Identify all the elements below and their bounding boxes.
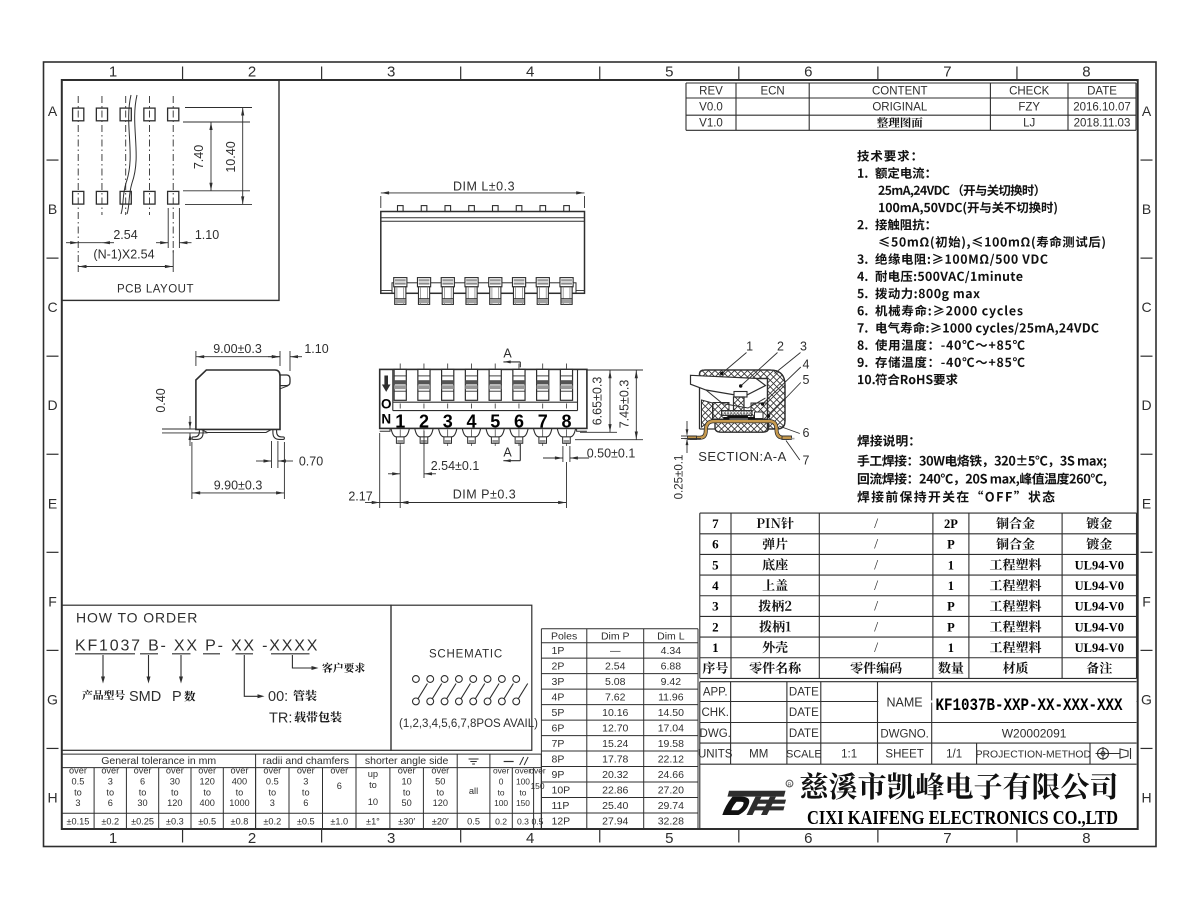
svg-text:CONTENT: CONTENT (872, 86, 928, 98)
svg-text:to: to (302, 787, 310, 797)
svg-text:3: 3 (303, 776, 308, 786)
svg-text:10: 10 (402, 776, 412, 786)
svg-text:±0.25: ±0.25 (131, 817, 154, 827)
svg-text:14.50: 14.50 (658, 707, 684, 719)
svg-text:to: to (519, 787, 526, 797)
svg-text:19.58: 19.58 (658, 738, 684, 750)
svg-text:7.62: 7.62 (605, 691, 626, 703)
svg-text:30: 30 (137, 798, 147, 808)
svg-text:5.08: 5.08 (605, 676, 626, 688)
svg-text:UL94-V0: UL94-V0 (1075, 579, 1124, 593)
svg-text:UL94-V0: UL94-V0 (1075, 620, 1124, 634)
svg-text:UL94-V0: UL94-V0 (1075, 641, 1124, 655)
svg-text:6: 6 (337, 781, 342, 791)
svg-text:over: over (297, 766, 315, 776)
svg-text:to: to (369, 780, 377, 790)
svg-text:17.04: 17.04 (658, 722, 684, 734)
svg-text:4.34: 4.34 (661, 645, 682, 657)
svg-text:DWGNO.: DWGNO. (880, 728, 929, 740)
svg-text:400: 400 (199, 798, 214, 808)
svg-text:100: 100 (494, 798, 508, 808)
svg-text:8P: 8P (552, 753, 565, 765)
svg-text:V0.0: V0.0 (699, 102, 723, 114)
svg-text:±1.0: ±1.0 (330, 817, 348, 827)
svg-text:KF1037 B- XX P- XX -XXXX: KF1037 B- XX P- XX -XXXX (75, 638, 319, 655)
svg-text:DATE: DATE (789, 687, 819, 699)
svg-text:/: / (874, 537, 879, 553)
svg-text:2018.11.03: 2018.11.03 (1074, 118, 1131, 130)
svg-text:11P: 11P (552, 800, 570, 812)
svg-text:FZY: FZY (1018, 102, 1040, 114)
svg-text:W20002091: W20002091 (1002, 726, 1067, 740)
svg-text:±0.5: ±0.5 (198, 817, 216, 827)
svg-text:6: 6 (140, 776, 145, 786)
svg-text:2: 2 (712, 619, 719, 634)
svg-text:to: to (106, 787, 114, 797)
svg-text:00:: 00: (268, 689, 288, 705)
svg-text:2P: 2P (944, 517, 958, 531)
svg-text:±0.5: ±0.5 (297, 817, 315, 827)
svg-text:±0.2: ±0.2 (263, 817, 281, 827)
svg-text:to: to (268, 787, 276, 797)
svg-text:over: over (166, 766, 184, 776)
svg-text:22.86: 22.86 (602, 784, 628, 796)
svg-text:30: 30 (170, 776, 180, 786)
svg-text:12P: 12P (552, 815, 571, 827)
svg-text:P: P (947, 600, 955, 614)
svg-text:CIXI KAIFENG ELECTRONICS CO.,L: CIXI KAIFENG ELECTRONICS CO.,LTD (807, 807, 1118, 829)
svg-text:100: 100 (516, 776, 530, 786)
svg-text:1: 1 (948, 558, 954, 572)
svg-text:SECTION:A-A: SECTION:A-A (698, 449, 787, 464)
svg-text:0.5: 0.5 (266, 776, 279, 786)
svg-text:1: 1 (948, 641, 954, 655)
svg-text:7: 7 (803, 453, 810, 467)
svg-text:2P: 2P (552, 661, 565, 673)
svg-text:to: to (171, 787, 179, 797)
svg-text:10.16: 10.16 (602, 707, 628, 719)
svg-text:SHEET: SHEET (885, 749, 923, 761)
svg-text:±30′: ±30′ (398, 817, 415, 827)
svg-text:0: 0 (499, 776, 504, 786)
svg-text:over: over (101, 766, 119, 776)
svg-text:6: 6 (712, 537, 719, 552)
svg-text:over: over (330, 766, 348, 776)
svg-text:over: over (69, 766, 87, 776)
svg-text:to: to (203, 787, 211, 797)
svg-text:over: over (493, 766, 510, 776)
svg-text:120: 120 (199, 776, 214, 786)
svg-text:to: to (436, 787, 444, 797)
svg-text:11.96: 11.96 (658, 691, 684, 703)
svg-text:HOW TO ORDER: HOW TO ORDER (76, 610, 198, 626)
svg-text:6: 6 (108, 798, 113, 808)
svg-text:3P: 3P (552, 676, 565, 688)
svg-text:6: 6 (803, 426, 810, 440)
svg-text:Dim P: Dim P (601, 631, 630, 643)
svg-text:APP.: APP. (703, 687, 728, 699)
svg-text:4: 4 (712, 578, 719, 593)
svg-text:0.3: 0.3 (517, 817, 529, 827)
svg-text:SMD: SMD (129, 689, 161, 705)
svg-text:4: 4 (803, 357, 810, 371)
svg-text:27.94: 27.94 (602, 815, 628, 827)
svg-text:UL94-V0: UL94-V0 (1075, 558, 1124, 572)
svg-text:0.5: 0.5 (72, 776, 85, 786)
svg-text:DATE: DATE (789, 707, 819, 719)
svg-text:3: 3 (270, 798, 275, 808)
svg-text:CHECK: CHECK (1009, 86, 1050, 98)
svg-text:±1°: ±1° (366, 817, 380, 827)
svg-text:5: 5 (803, 373, 810, 387)
svg-text:SCHEMATIC: SCHEMATIC (429, 649, 503, 661)
svg-text:R: R (788, 782, 792, 788)
svg-text:3: 3 (800, 340, 807, 354)
svg-text:1:1: 1:1 (841, 749, 857, 761)
svg-text:2: 2 (777, 340, 784, 354)
svg-text:3: 3 (108, 776, 113, 786)
svg-text:—: — (610, 645, 621, 657)
svg-text:50: 50 (435, 776, 445, 786)
svg-text:0.2: 0.2 (495, 817, 507, 827)
svg-text:1: 1 (948, 579, 954, 593)
svg-text:up: up (368, 769, 378, 779)
svg-text:(1,2,3,4,5,6,7,8POS AVAIL): (1,2,3,4,5,6,7,8POS AVAIL) (399, 718, 538, 730)
svg-text:to: to (403, 787, 411, 797)
svg-text:to: to (236, 787, 244, 797)
svg-text:to: to (74, 787, 82, 797)
svg-text:ORIGINAL: ORIGINAL (872, 102, 928, 114)
svg-text:P: P (947, 620, 955, 634)
svg-text:3: 3 (75, 798, 80, 808)
svg-text:/: / (874, 619, 879, 635)
svg-text:1: 1 (712, 640, 719, 655)
svg-text:REV: REV (699, 86, 723, 98)
svg-text:±0.15: ±0.15 (66, 817, 89, 827)
svg-text:over: over (398, 766, 416, 776)
svg-text:over: over (431, 766, 449, 776)
svg-text:P: P (947, 538, 955, 552)
svg-text:all: all (469, 786, 478, 796)
svg-text:V1.0: V1.0 (699, 118, 723, 130)
svg-text:Dim L: Dim L (657, 631, 685, 643)
svg-text:P: P (172, 689, 182, 705)
svg-text:50: 50 (402, 798, 412, 808)
svg-text:/: / (874, 578, 879, 594)
svg-text:12.70: 12.70 (602, 722, 628, 734)
svg-text:TR:: TR: (269, 711, 292, 727)
svg-text:NAME: NAME (887, 696, 923, 710)
svg-text:±20′: ±20′ (432, 817, 449, 827)
svg-text:±0.3: ±0.3 (166, 817, 184, 827)
svg-text:25.40: 25.40 (602, 800, 628, 812)
svg-text:1000: 1000 (229, 798, 249, 808)
svg-text:2016.10.07: 2016.10.07 (1073, 102, 1131, 114)
svg-text:15.24: 15.24 (602, 738, 628, 750)
svg-text:UL94-V0: UL94-V0 (1075, 600, 1124, 614)
svg-text:22.12: 22.12 (658, 753, 684, 765)
svg-text:/: / (874, 557, 879, 573)
svg-text:1/1: 1/1 (946, 749, 962, 761)
svg-text:ECN: ECN (760, 86, 784, 98)
svg-text:17.78: 17.78 (602, 753, 628, 765)
svg-text:9.42: 9.42 (661, 676, 682, 688)
svg-text:1: 1 (746, 340, 753, 354)
svg-text:DATE: DATE (1087, 86, 1117, 98)
svg-text:DWG.: DWG. (700, 728, 731, 740)
svg-text:29.74: 29.74 (658, 800, 684, 812)
svg-text:20.32: 20.32 (602, 769, 628, 781)
svg-text:24.66: 24.66 (658, 769, 684, 781)
svg-text:5P: 5P (552, 707, 565, 719)
svg-text:120: 120 (167, 798, 182, 808)
svg-text:1P: 1P (552, 645, 565, 657)
svg-text:150: 150 (516, 798, 530, 808)
svg-text:120: 120 (433, 798, 448, 808)
svg-text:DATE: DATE (789, 728, 819, 740)
svg-text:Poles: Poles (551, 631, 577, 643)
svg-text:LJ: LJ (1023, 118, 1035, 130)
svg-text:over: over (198, 766, 216, 776)
svg-text:7: 7 (712, 516, 719, 531)
svg-text:to: to (498, 787, 505, 797)
svg-text:±0.2: ±0.2 (101, 817, 119, 827)
svg-text:SCALE: SCALE (786, 749, 821, 761)
svg-text:2.54: 2.54 (605, 661, 626, 673)
svg-text:6.88: 6.88 (661, 661, 682, 673)
svg-text:400: 400 (232, 776, 247, 786)
svg-text:6P: 6P (552, 722, 565, 734)
svg-text:0.5: 0.5 (467, 817, 480, 827)
svg-text:to: to (139, 787, 147, 797)
svg-text:9P: 9P (552, 769, 565, 781)
svg-text:over: over (263, 766, 281, 776)
svg-text:PROJECTION-METHOD: PROJECTION-METHOD (976, 750, 1091, 761)
svg-text:4P: 4P (552, 691, 565, 703)
svg-text:CHK.: CHK. (701, 707, 728, 719)
svg-text:10: 10 (368, 797, 378, 807)
svg-text:5: 5 (712, 557, 719, 572)
svg-text:UNITS: UNITS (698, 749, 733, 761)
svg-text:0.25±0.1: 0.25±0.1 (674, 455, 686, 500)
svg-text:over: over (134, 766, 152, 776)
svg-text:10P: 10P (552, 784, 571, 796)
svg-text:over: over (231, 766, 249, 776)
svg-text:/: / (874, 599, 879, 615)
svg-text:/: / (874, 640, 879, 656)
svg-text:3: 3 (712, 599, 719, 614)
svg-text:27.20: 27.20 (658, 784, 684, 796)
svg-text:KF1037B-XXP-XX-XXX-XXX: KF1037B-XXP-XX-XXX-XXX (936, 696, 1123, 716)
svg-text:32.28: 32.28 (658, 815, 684, 827)
svg-text:7P: 7P (552, 738, 565, 750)
svg-text:MM: MM (749, 749, 768, 761)
svg-text:/: / (874, 516, 879, 532)
svg-text:±0.8: ±0.8 (231, 817, 249, 827)
svg-text:6: 6 (303, 798, 308, 808)
